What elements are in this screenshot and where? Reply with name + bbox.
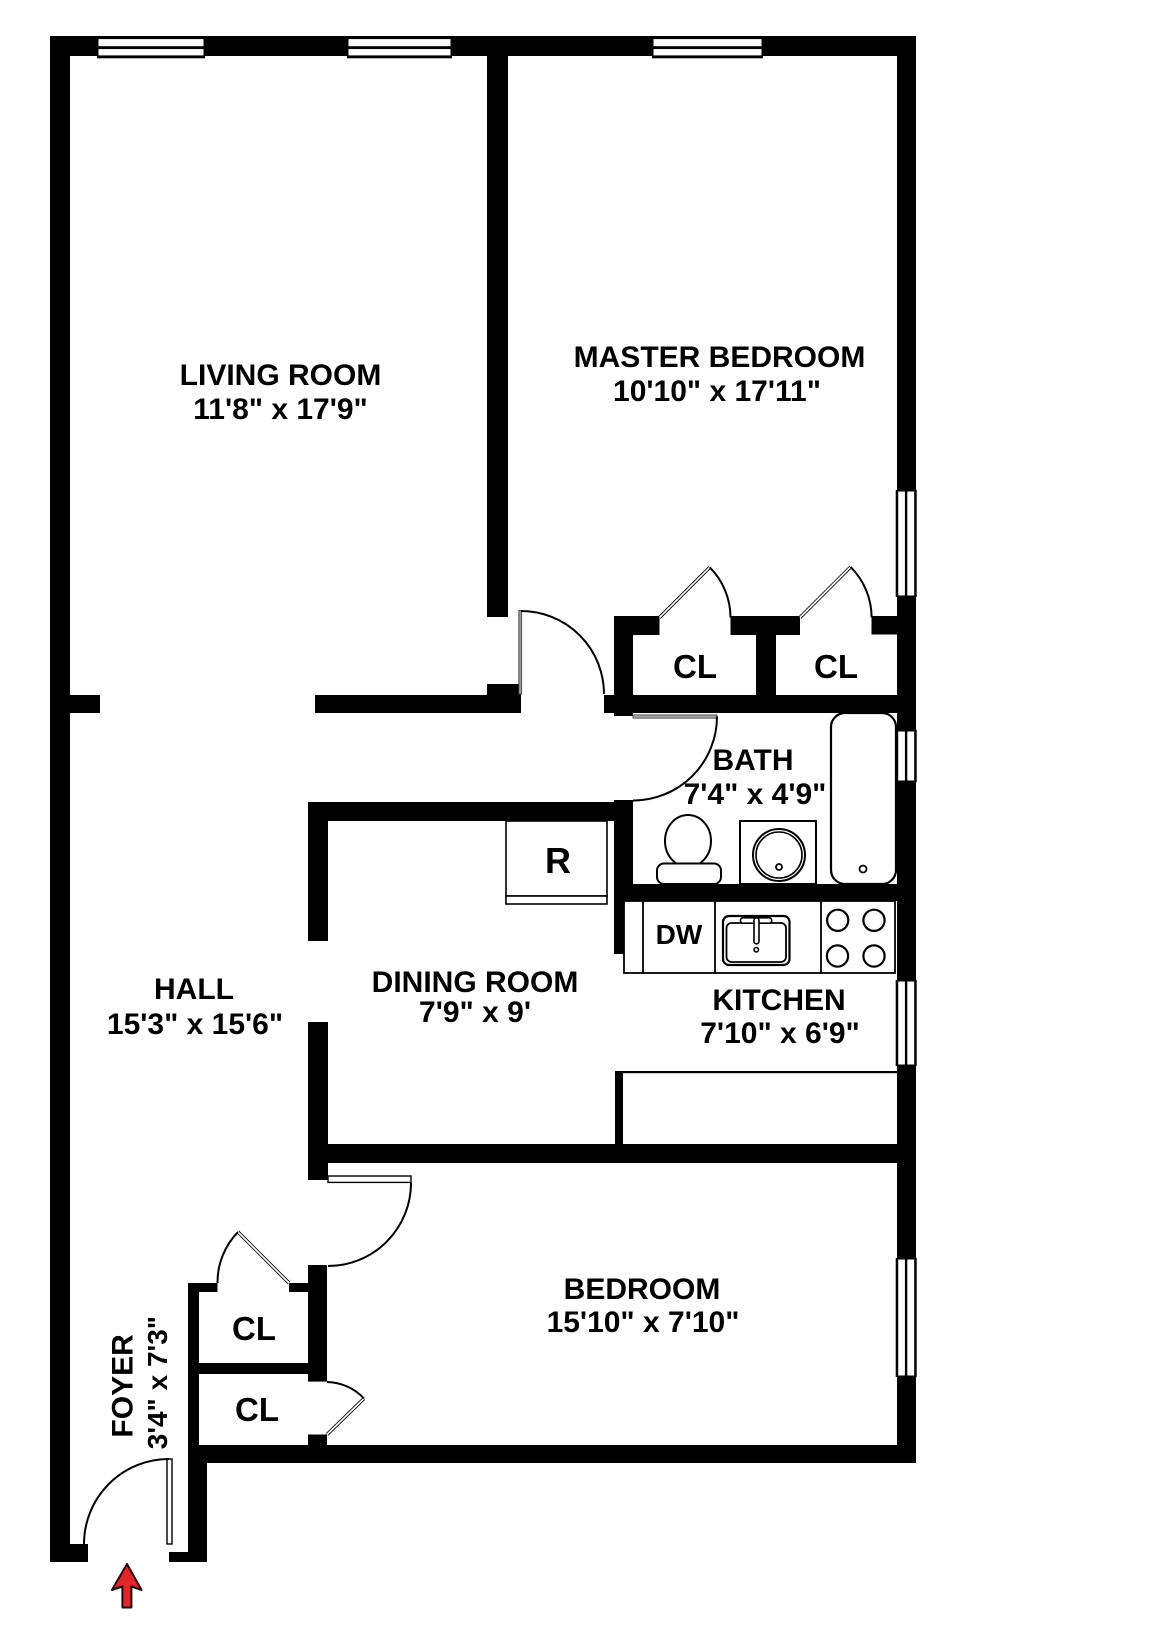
svg-text:FOYER: FOYER	[107, 1334, 140, 1438]
svg-text:7'9" x 9': 7'9" x 9'	[419, 996, 531, 1029]
svg-text:3'4" x 7'3": 3'4" x 7'3"	[142, 1316, 173, 1449]
svg-text:CL: CL	[235, 1391, 279, 1428]
svg-text:CL: CL	[232, 1310, 276, 1347]
svg-text:BEDROOM: BEDROOM	[564, 1273, 721, 1306]
svg-text:CL: CL	[814, 648, 858, 685]
svg-text:CL: CL	[673, 648, 717, 685]
svg-text:DW: DW	[656, 919, 703, 950]
svg-text:KITCHEN: KITCHEN	[712, 984, 845, 1017]
svg-text:BATH: BATH	[712, 744, 793, 777]
svg-text:HALL: HALL	[154, 973, 234, 1006]
svg-text:15'3" x 15'6": 15'3" x 15'6"	[107, 1008, 283, 1041]
svg-text:15'10" x 7'10": 15'10" x 7'10"	[547, 1306, 740, 1339]
svg-text:11'8" x 17'9": 11'8" x 17'9"	[193, 393, 368, 426]
svg-text:DINING ROOM: DINING ROOM	[372, 966, 579, 999]
svg-text:10'10" x 17'11": 10'10" x 17'11"	[613, 375, 821, 408]
svg-text:7'10" x 6'9": 7'10" x 6'9"	[700, 1017, 860, 1050]
svg-text:LIVING ROOM: LIVING ROOM	[180, 359, 382, 392]
svg-text:7'4" x 4'9": 7'4" x 4'9"	[684, 778, 827, 811]
svg-text:MASTER BEDROOM: MASTER BEDROOM	[574, 341, 866, 374]
svg-text:R: R	[545, 840, 571, 881]
